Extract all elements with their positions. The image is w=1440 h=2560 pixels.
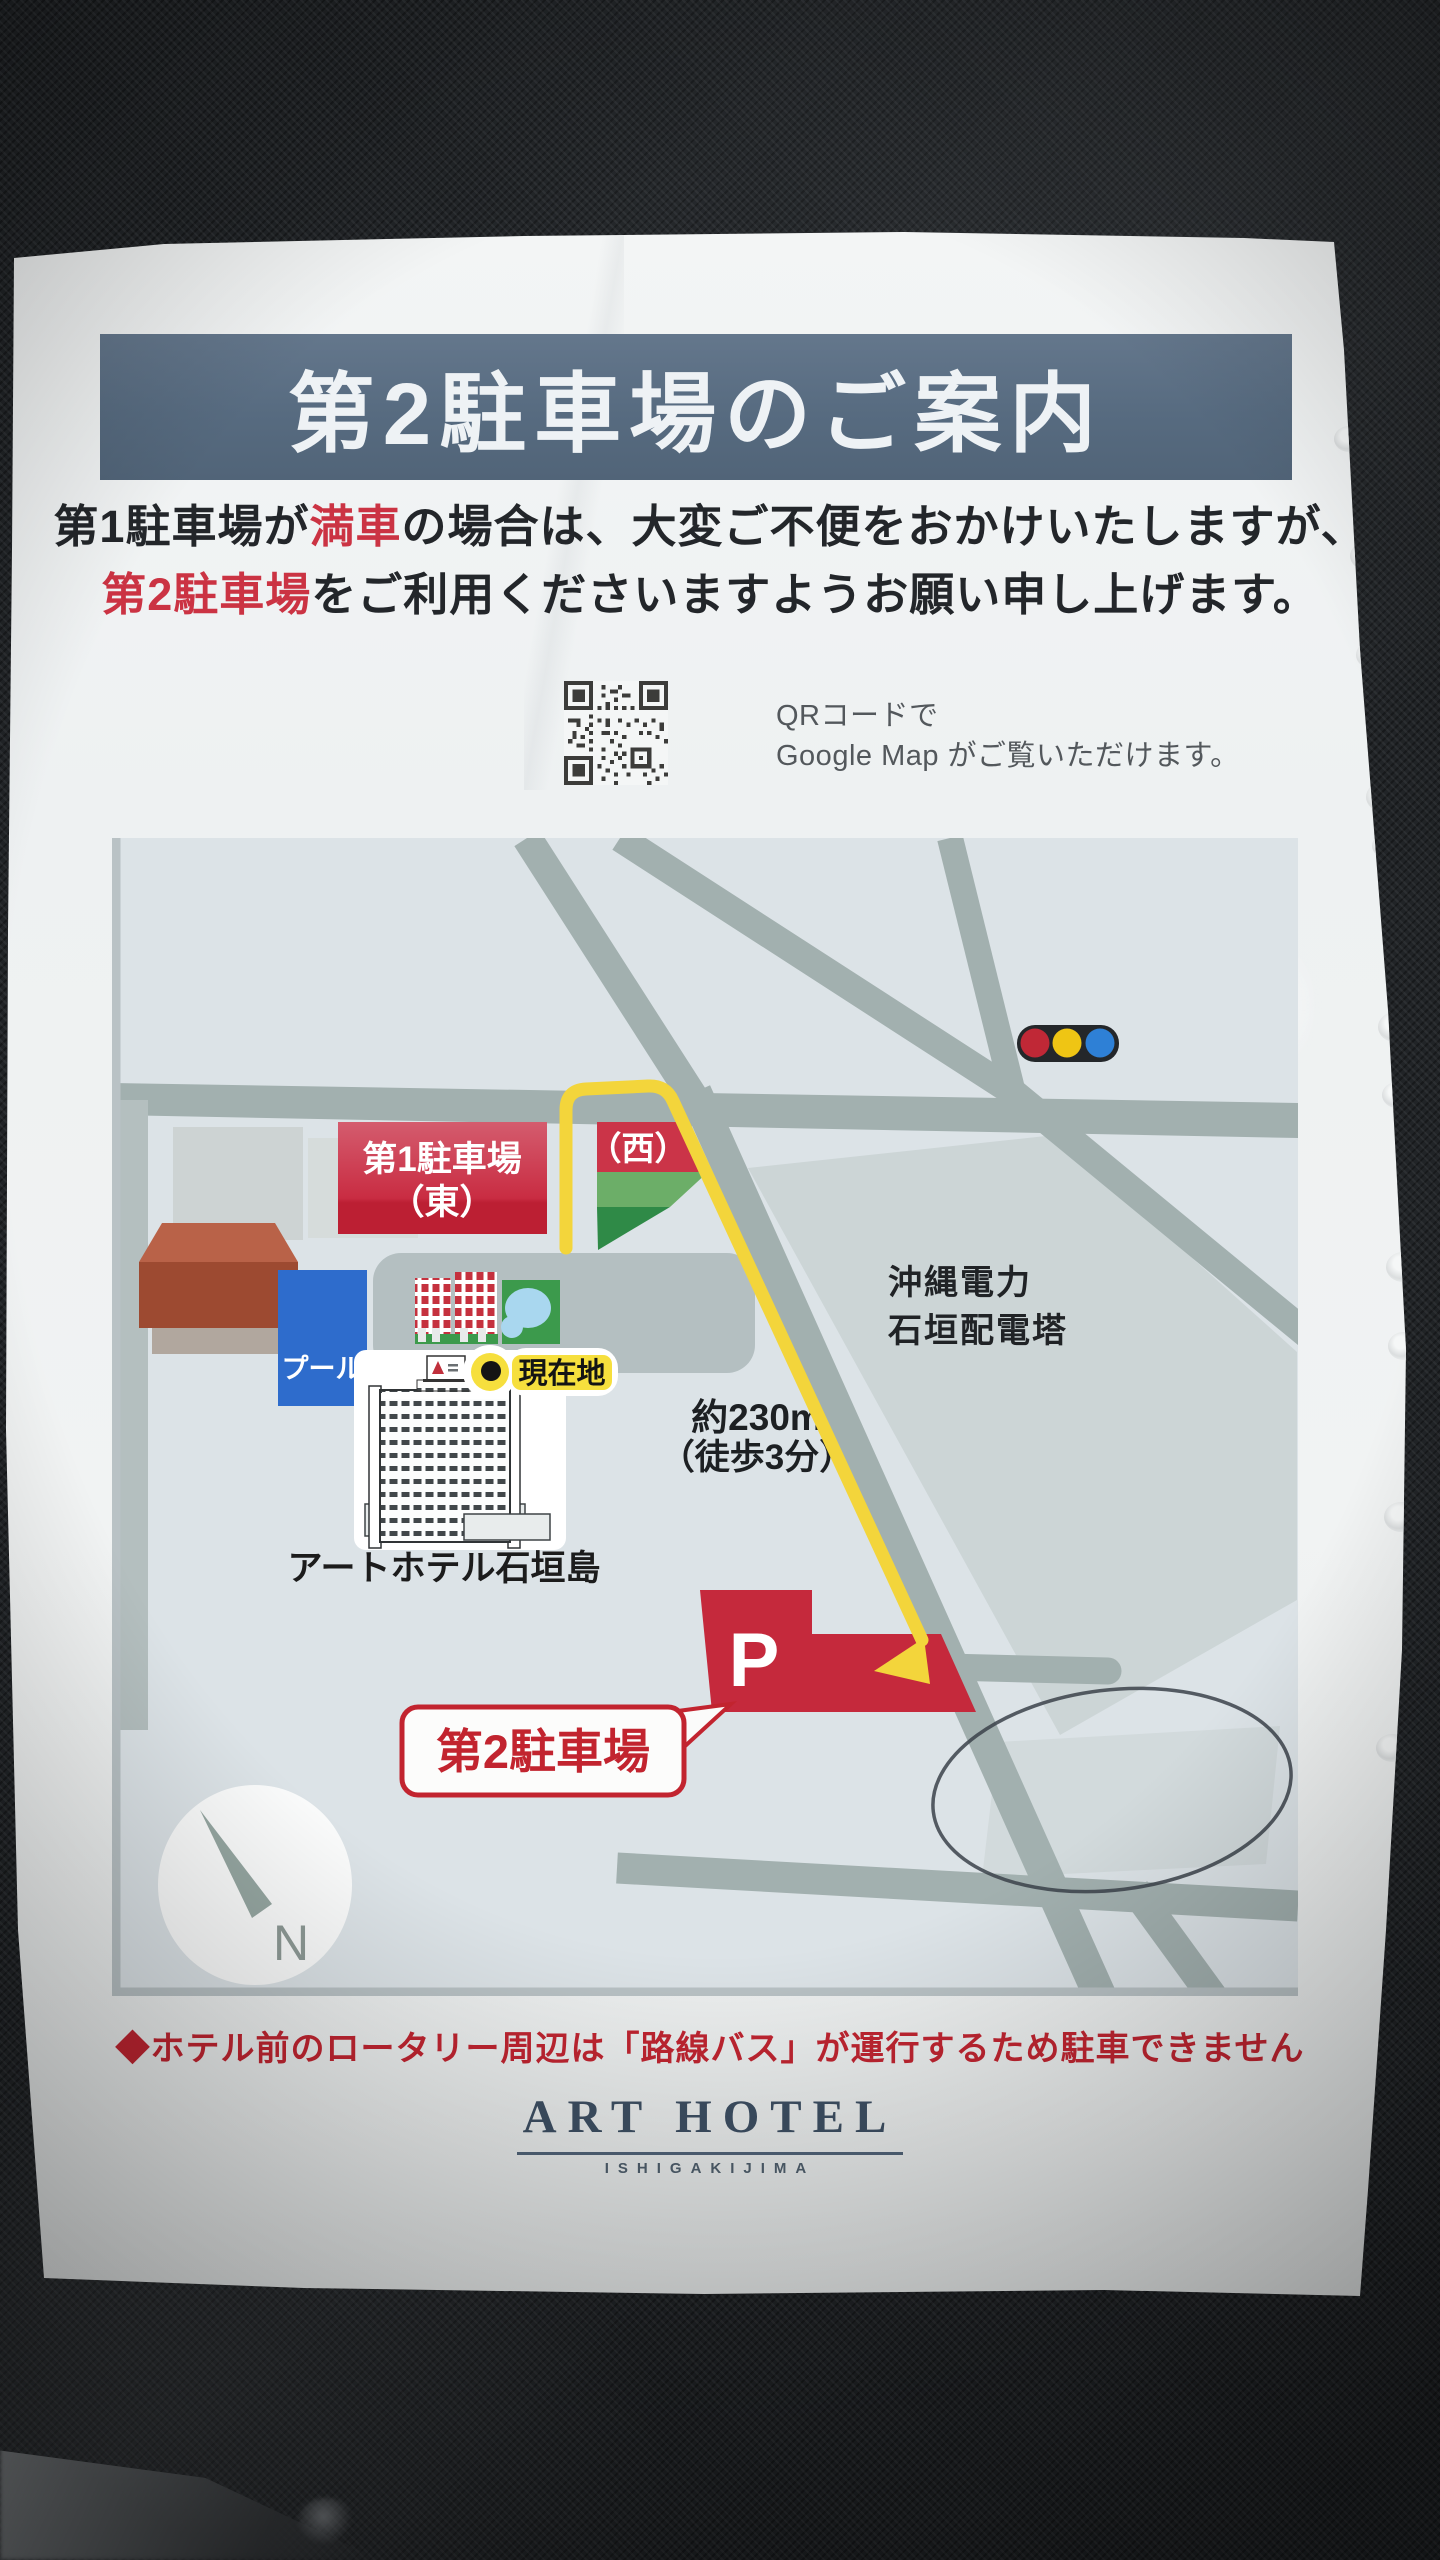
car-seat-bump xyxy=(298,2498,354,2544)
qr-code-icon xyxy=(564,676,668,790)
paper-dimple xyxy=(1386,1252,1420,1282)
notice-line1-black: 第1駐車場が xyxy=(53,501,309,552)
paper-dimple xyxy=(1372,834,1400,858)
paper-dimple xyxy=(1350,542,1382,570)
paper-dimple xyxy=(1376,1734,1408,1762)
lot1-west-text: （西） xyxy=(589,1130,688,1167)
notice-line2-black: をご利用くださいますようお願い申し上げます。 xyxy=(311,569,1319,620)
compass-icon: N xyxy=(158,1785,352,1985)
lot1-east-label: 第1駐車場 （東） xyxy=(338,1122,547,1234)
notice-line1-red: 満車 xyxy=(309,501,401,552)
area-map: 第1駐車場 （東） （西） プール xyxy=(112,838,1298,1996)
hotel-garden-illustration xyxy=(415,1272,560,1344)
substation-line2: 石垣配電塔 xyxy=(887,1312,1068,1350)
warning-note: ◆ホテル前のロータリー周辺は「路線バス」が運行するため駐車できません xyxy=(4,2021,1416,2070)
distance-line1: 約230m xyxy=(691,1397,823,1438)
pool-label: プール xyxy=(282,1354,363,1384)
parking-p-mark: P xyxy=(729,1618,780,1703)
hotel-logo-text: ART HOTEL xyxy=(517,2090,904,2155)
lot1-east-line2: （東） xyxy=(389,1183,494,1222)
lot2-label: 第2駐車場 xyxy=(436,1725,650,1778)
map-graphic: 第1駐車場 （東） （西） プール xyxy=(112,838,1298,1996)
hotel-logo-subtext: ISHIGAKIJIMA xyxy=(4,2160,1416,2177)
flyer-paper: 第2駐車場のご案内 第1駐車場が満車の場合は、大変ご不便をおかけいたしますが、 … xyxy=(4,230,1416,2308)
road-left-vertical xyxy=(116,1100,148,1730)
page-title: 第2駐車場のご案内 xyxy=(288,344,1104,470)
current-location-badge: 現在地 xyxy=(463,1345,618,1399)
qr-caption: QRコードで Google Map がご覧いただけます。 xyxy=(776,696,1240,776)
traffic-light-icon xyxy=(1017,1025,1119,1062)
paper-dimple xyxy=(1384,1502,1418,1532)
current-location-dot xyxy=(481,1361,501,1381)
lot1-east-line1: 第1駐車場 xyxy=(362,1140,521,1179)
paper-dimple xyxy=(1388,1332,1418,1360)
pool-area: プール xyxy=(278,1270,367,1406)
substation-line1: 沖縄電力 xyxy=(888,1264,1032,1302)
notice-line-1: 第1駐車場が満車の場合は、大変ご不便をおかけいたしますが、 xyxy=(4,490,1416,555)
hotel-rooftop-sign xyxy=(427,1356,465,1380)
hotel-name-label: アートホテル石垣島 xyxy=(288,1549,601,1588)
title-banner: 第2駐車場のご案内 xyxy=(100,334,1292,480)
paper-dimple xyxy=(1378,1012,1412,1042)
compass-n-label: N xyxy=(273,1915,309,1971)
notice-line-2: 第2駐車場をご利用くださいますようお願い申し上げます。 xyxy=(4,558,1416,623)
current-location-text: 現在地 xyxy=(518,1357,605,1390)
paper-dimple xyxy=(1356,642,1384,668)
notice-line2-red: 第2駐車場 xyxy=(101,569,311,620)
paper-dimple xyxy=(1382,1082,1412,1108)
house-building xyxy=(139,1223,298,1354)
paper-dimple xyxy=(1334,426,1364,452)
hotel-wing-right xyxy=(455,1272,497,1334)
paper-dimple xyxy=(1366,782,1400,812)
qr-caption-line2: Google Map がご覧いただけます。 xyxy=(776,736,1240,776)
qr-caption-line1: QRコードで xyxy=(776,696,1240,736)
photo-of-parking-flyer: { "title": "第2駐車場のご案内", "notice": { "l1a… xyxy=(0,0,1440,2560)
lot2-callout: 第2駐車場 xyxy=(402,1704,731,1795)
hotel-wing-left xyxy=(415,1278,451,1334)
hotel-logo: ART HOTEL xyxy=(4,2090,1416,2155)
notice-line1-black2: の場合は、大変ご不便をおかけいたしますが、 xyxy=(401,501,1366,552)
